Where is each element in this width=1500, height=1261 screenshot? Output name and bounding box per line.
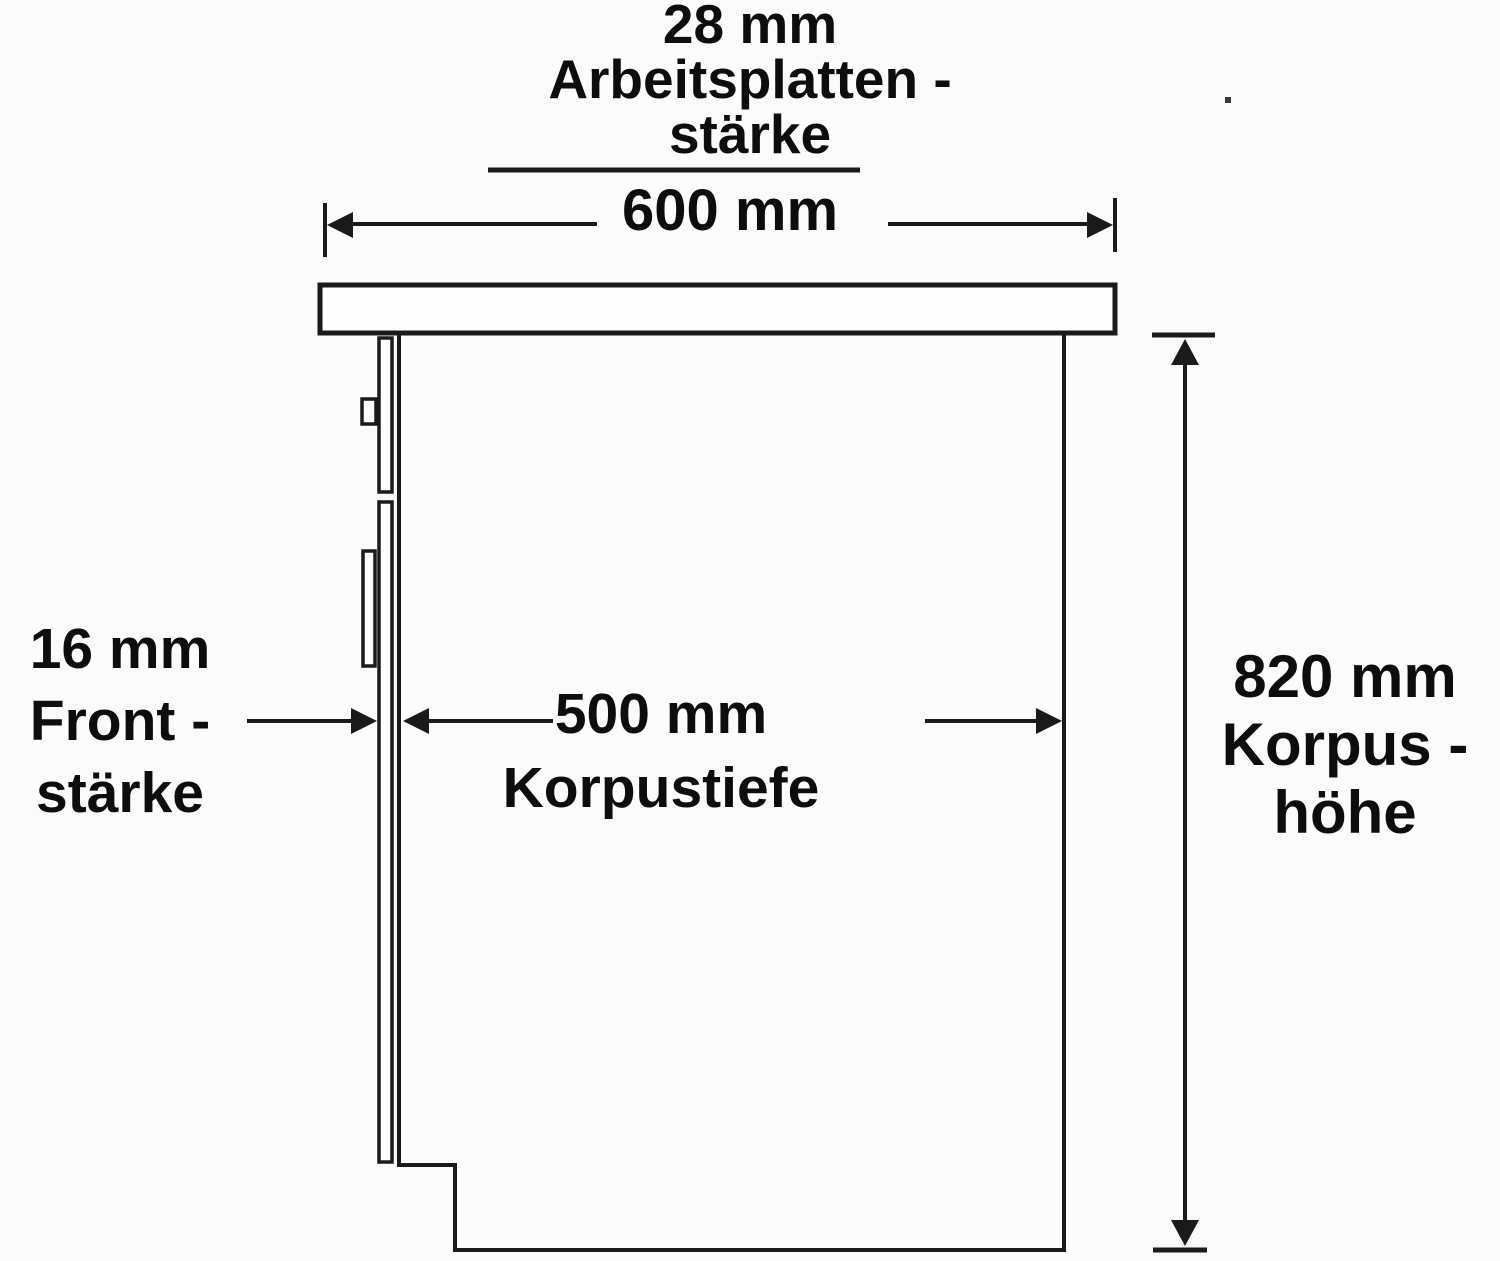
body-height-word1: Korpus -: [1195, 711, 1495, 779]
width-dimension-label: 600 mm: [570, 181, 890, 241]
body-height-value: 820 mm: [1195, 643, 1495, 711]
door-handle: [363, 551, 375, 666]
body-height-word2: höhe: [1195, 779, 1495, 847]
body-depth-label: 500 mm Korpustiefe: [481, 677, 841, 825]
stray-dot: [1225, 97, 1231, 103]
worktop-outline: [320, 285, 1115, 333]
dim-600-left-arrowhead: [327, 212, 353, 238]
front-thickness-word2: stärke: [0, 757, 245, 829]
dim-600-right-arrowhead: [1087, 212, 1113, 238]
drawer-front-panel: [379, 338, 392, 492]
drawer-handle: [362, 399, 376, 424]
width-value: 600 mm: [570, 181, 890, 241]
door-front-panel: [379, 502, 392, 1162]
body-depth-word: Korpustiefe: [481, 751, 841, 825]
dimension-drawing-page: 28 mm Arbeitsplatten - stärke 600 mm 16 …: [0, 0, 1500, 1261]
worktop-thickness-word1: Arbeitsplatten -: [430, 52, 1070, 107]
front-thickness-value: 16 mm: [0, 613, 245, 685]
dim-500-left-arrowhead: [403, 708, 429, 734]
dim-820-bottom-arrowhead: [1171, 1220, 1199, 1246]
worktop-thickness-label: 28 mm Arbeitsplatten - stärke: [430, 0, 1070, 162]
front-thickness-word1: Front -: [0, 685, 245, 757]
front-thickness-label: 16 mm Front - stärke: [0, 613, 245, 829]
body-depth-value: 500 mm: [481, 677, 841, 751]
dim-500-right-arrowhead: [1036, 708, 1062, 734]
worktop-thickness-value: 28 mm: [430, 0, 1070, 52]
front-thickness-arrowhead: [351, 708, 377, 734]
body-height-label: 820 mm Korpus - höhe: [1195, 643, 1495, 847]
worktop-thickness-word2: stärke: [430, 107, 1070, 162]
